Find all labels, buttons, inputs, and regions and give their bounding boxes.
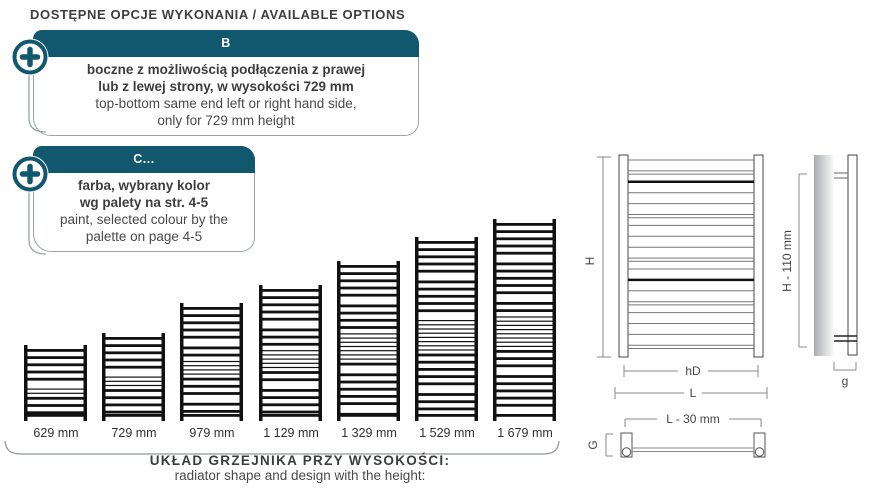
plus-icon	[11, 155, 49, 193]
option-card-c: C... farba, wybrany kolor wg palety na s…	[33, 146, 255, 252]
side-profile	[848, 155, 857, 355]
option-b-text-pl-2: lub z lewej strony, w wysokości 729 mm	[40, 78, 412, 95]
top-right-port	[755, 448, 763, 456]
option-b-text-pl-1: boczne z możliwością podłączenia z prawe…	[40, 61, 412, 78]
g-dimension-label: g	[842, 374, 849, 388]
top-view-bar	[632, 448, 754, 452]
radiator-illustration-979	[180, 303, 243, 426]
page-title: DOSTĘPNE OPCJE WYKONANIA / AVAILABLE OPT…	[30, 7, 405, 22]
radiator-illustration-1129	[259, 285, 322, 426]
option-card-b: B boczne z możliwością podłączenia z pra…	[33, 30, 419, 136]
side-top-connectors	[834, 173, 848, 178]
radiator-illustration-729	[102, 333, 165, 426]
option-c-header: C...	[33, 146, 255, 173]
h-dimension	[597, 157, 611, 357]
hd-dimension-label: hD	[685, 364, 701, 378]
l-dimension-label: L	[690, 386, 697, 400]
top-left-port	[622, 448, 630, 456]
option-c-text-en-1: paint, selected colour by the	[40, 211, 248, 228]
option-c-text-en-2: palette on page 4-5	[40, 228, 248, 245]
technical-drawing: H hD L H - 110 mm g L - 30 m	[585, 143, 883, 473]
radiator-illustration-1679	[493, 219, 556, 426]
option-b-tail-curve	[22, 70, 52, 136]
option-c-body: farba, wybrany kolor wg palety na str. 4…	[33, 173, 255, 252]
option-b-body: boczne z możliwością podłączenia z prawe…	[33, 57, 419, 136]
catalog-page: DOSTĘPNE OPCJE WYKONANIA / AVAILABLE OPT…	[0, 0, 883, 501]
l30-dimension-label: L - 30 mm	[666, 412, 720, 426]
caption-pl: UKŁAD GRZEJNIKA PRZY WYSOKOŚCI:	[120, 453, 480, 468]
radiator-illustration-1529	[415, 237, 478, 426]
G-dimension	[606, 434, 613, 456]
caption: UKŁAD GRZEJNIKA PRZY WYSOKOŚCI: radiator…	[120, 453, 480, 483]
g-dimension	[834, 362, 856, 370]
h-dimension-label: H	[585, 257, 597, 266]
radiator-illustration-629	[24, 345, 87, 426]
option-b-header: B	[33, 30, 419, 57]
option-c-text-pl-2: wg palety na str. 4-5	[40, 194, 248, 211]
front-left-rail	[619, 155, 628, 357]
front-right-rail	[754, 155, 763, 357]
h110-dimension	[799, 174, 807, 347]
caption-en: radiator shape and design with the heigh…	[120, 468, 480, 483]
radiator-illustration-1329	[337, 261, 400, 426]
plus-icon	[11, 38, 49, 76]
G-dimension-label: G	[586, 440, 600, 449]
front-view-bars	[628, 160, 754, 349]
wall-gradient	[814, 155, 834, 356]
option-b-text-en-1: top-bottom same end left or right hand s…	[40, 95, 412, 112]
option-c-text-pl-1: farba, wybrany kolor	[40, 177, 248, 194]
option-c-tail-curve	[22, 188, 52, 258]
h110-dimension-label: H - 110 mm	[780, 230, 794, 292]
option-b-text-en-2: only for 729 mm height	[40, 112, 412, 129]
